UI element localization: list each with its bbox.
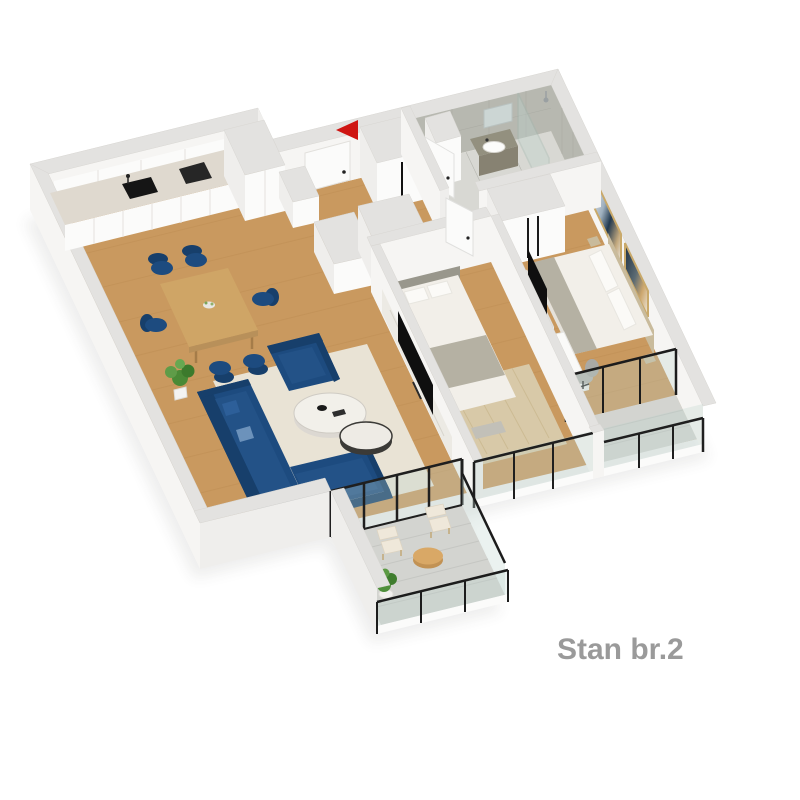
coffee-table-small xyxy=(340,422,392,455)
floor-plan-render: Stan br.2 xyxy=(0,0,800,800)
faucet-icon xyxy=(485,138,488,141)
plan-label: Stan br.2 xyxy=(557,633,684,666)
balcony-table xyxy=(413,548,443,569)
vanity-sink xyxy=(483,142,505,153)
apartment-3d-plan: Stan br.2 xyxy=(0,0,800,800)
decor-bowl xyxy=(317,405,327,411)
